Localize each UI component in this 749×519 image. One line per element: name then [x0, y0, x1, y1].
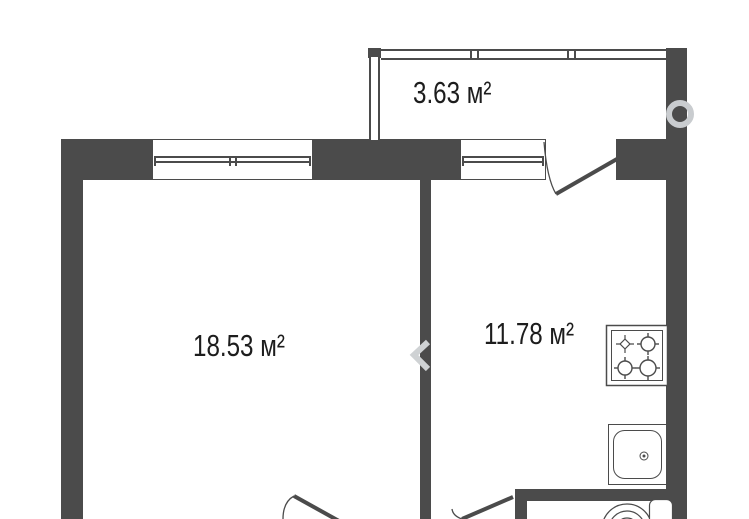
cistern-icon [650, 500, 673, 519]
toilet-icon [602, 504, 652, 519]
floor-plan: 3.63 м² 18.53 м² 11.78 м² [0, 0, 749, 519]
sink-icon [609, 425, 667, 485]
door-swing-icon [283, 496, 339, 519]
door-swing-icon [544, 142, 617, 194]
watermark-chevron-icon [414, 342, 428, 369]
door-swing-icon [452, 497, 513, 519]
plan-lineart [0, 0, 749, 519]
watermark-ring-icon [669, 103, 691, 125]
stove-icon [607, 326, 668, 386]
